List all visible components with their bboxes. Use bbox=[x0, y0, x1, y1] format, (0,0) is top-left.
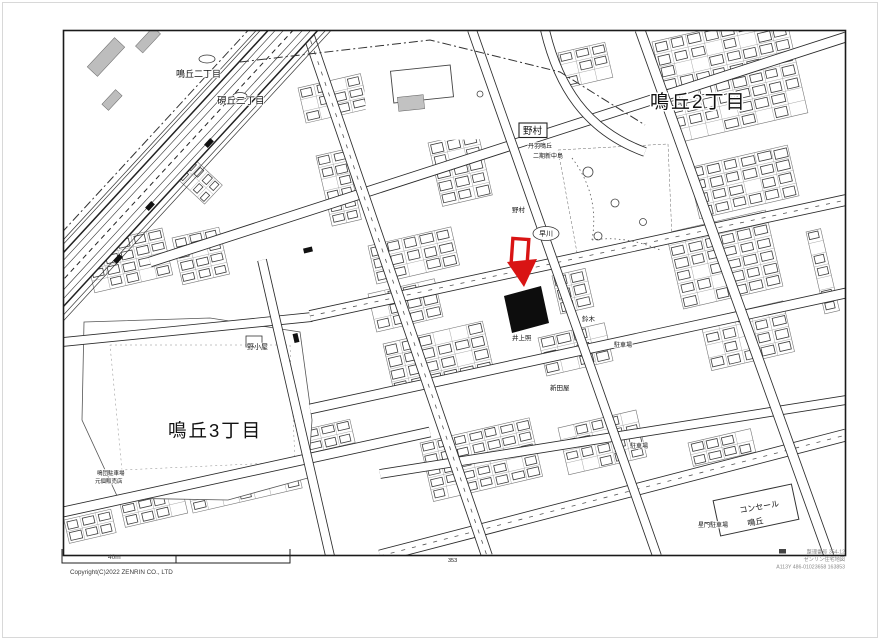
building bbox=[322, 167, 333, 177]
building bbox=[557, 333, 571, 344]
building bbox=[441, 356, 455, 367]
building bbox=[385, 344, 398, 355]
map-label: 二期新中島 bbox=[533, 152, 563, 160]
building bbox=[468, 323, 482, 334]
building bbox=[677, 270, 690, 280]
building bbox=[694, 454, 706, 464]
building bbox=[674, 257, 688, 268]
bus-stop-symbol bbox=[303, 247, 313, 254]
building bbox=[496, 475, 509, 485]
building bbox=[727, 51, 740, 61]
building bbox=[318, 155, 330, 165]
building bbox=[765, 189, 779, 200]
building bbox=[194, 167, 204, 177]
building bbox=[577, 297, 591, 307]
building bbox=[655, 41, 668, 52]
building bbox=[742, 114, 756, 125]
building bbox=[774, 148, 789, 159]
building bbox=[546, 362, 559, 372]
building bbox=[455, 340, 469, 350]
building bbox=[779, 173, 793, 184]
building bbox=[706, 438, 719, 448]
building bbox=[681, 282, 694, 292]
building bbox=[716, 202, 729, 212]
building bbox=[783, 186, 796, 197]
building bbox=[86, 527, 98, 536]
building bbox=[439, 180, 453, 191]
copyright-text: Copyright(C)2022 ZENRIN CO., LTD bbox=[70, 569, 173, 576]
building bbox=[214, 265, 226, 274]
building bbox=[472, 173, 485, 183]
building bbox=[471, 336, 485, 347]
building bbox=[307, 111, 320, 121]
building bbox=[426, 307, 440, 318]
building bbox=[149, 230, 162, 240]
building bbox=[576, 48, 589, 57]
building bbox=[527, 467, 540, 477]
building bbox=[136, 245, 149, 255]
building bbox=[726, 172, 739, 182]
building bbox=[740, 444, 752, 454]
building bbox=[473, 443, 485, 453]
building bbox=[600, 455, 612, 465]
map-margin-footer: 40m 353 Copyright(C)2022 ZENRIN CO., LTD… bbox=[62, 548, 845, 577]
map-label: 鳴団駐車場 bbox=[97, 469, 125, 477]
building bbox=[760, 164, 774, 174]
map-label: 星門駐車場 bbox=[698, 521, 728, 529]
building bbox=[525, 456, 537, 466]
building bbox=[419, 335, 432, 346]
building bbox=[309, 441, 322, 450]
building bbox=[431, 142, 444, 153]
building bbox=[757, 151, 771, 162]
building bbox=[454, 435, 466, 444]
map-label: 野村 bbox=[523, 125, 543, 137]
building bbox=[750, 73, 763, 83]
map-canvas: 野村丹羽鳴丘二期新中島野村早川鈴木井上照新田屋駐車場駐車場星門駐車場コンセール鳴… bbox=[0, 0, 880, 640]
building bbox=[743, 47, 757, 58]
facility-gray-building bbox=[397, 95, 424, 112]
target-parcel bbox=[504, 286, 549, 333]
map-label: 野村 bbox=[512, 205, 526, 214]
building bbox=[98, 512, 110, 521]
building bbox=[404, 237, 417, 248]
building bbox=[126, 514, 138, 524]
building bbox=[721, 435, 734, 445]
map-label: 新田屋 bbox=[550, 383, 570, 392]
building bbox=[782, 65, 796, 76]
building bbox=[725, 341, 738, 351]
building bbox=[766, 275, 780, 286]
building bbox=[517, 421, 530, 431]
building bbox=[560, 52, 572, 61]
building bbox=[761, 345, 775, 356]
building bbox=[387, 241, 400, 251]
building bbox=[478, 466, 490, 475]
building bbox=[211, 253, 223, 262]
building bbox=[353, 99, 366, 108]
building bbox=[773, 27, 787, 38]
map-label: 早川 bbox=[539, 230, 553, 238]
building bbox=[142, 511, 154, 521]
building bbox=[741, 242, 754, 252]
building bbox=[658, 54, 671, 65]
highway-layer bbox=[4, 0, 353, 337]
building bbox=[716, 288, 729, 299]
building bbox=[775, 328, 789, 339]
building bbox=[757, 238, 770, 248]
district-label-ne: 鳴丘2丁目 bbox=[650, 91, 747, 113]
map-artwork-layer bbox=[4, 0, 846, 556]
building bbox=[594, 56, 607, 65]
building bbox=[743, 168, 757, 179]
building bbox=[494, 463, 507, 473]
building bbox=[458, 189, 471, 199]
building bbox=[737, 229, 751, 241]
building bbox=[771, 93, 785, 104]
building bbox=[741, 156, 755, 167]
building bbox=[778, 341, 791, 351]
building bbox=[339, 175, 351, 185]
bus-stop-group bbox=[303, 247, 313, 254]
building bbox=[710, 176, 723, 187]
building bbox=[322, 425, 335, 434]
building bbox=[691, 46, 705, 57]
building bbox=[771, 13, 786, 24]
building bbox=[710, 54, 724, 65]
building bbox=[661, 65, 675, 77]
building bbox=[541, 336, 555, 347]
building bbox=[337, 421, 350, 430]
building bbox=[422, 442, 434, 451]
building bbox=[776, 160, 791, 171]
building bbox=[697, 278, 710, 289]
building bbox=[596, 351, 609, 362]
building bbox=[182, 272, 195, 281]
building bbox=[442, 192, 456, 203]
district-label-small-upper: 鳴丘二丁目 bbox=[176, 68, 221, 79]
building bbox=[675, 50, 688, 60]
building bbox=[122, 503, 135, 512]
building bbox=[470, 432, 483, 441]
building bbox=[480, 477, 492, 486]
building bbox=[749, 193, 762, 204]
building bbox=[728, 354, 741, 364]
building bbox=[485, 427, 497, 437]
building bbox=[754, 97, 768, 108]
building bbox=[724, 38, 737, 48]
building bbox=[671, 245, 684, 255]
building bbox=[333, 213, 345, 222]
building bbox=[196, 257, 209, 266]
building bbox=[760, 251, 773, 261]
building bbox=[814, 254, 825, 264]
building bbox=[455, 176, 469, 187]
building bbox=[377, 318, 390, 328]
sheet-number: 353 bbox=[448, 558, 457, 564]
building bbox=[724, 159, 737, 169]
building bbox=[157, 265, 170, 275]
building bbox=[388, 356, 402, 367]
footer-right-line1: 整理番号 354-12 bbox=[807, 548, 845, 556]
footer-right-line3: A113Y 486-01023658 163853 bbox=[776, 565, 845, 571]
building bbox=[754, 19, 768, 30]
district-label-sw: 鳴丘3丁目 bbox=[168, 420, 262, 441]
building bbox=[420, 233, 434, 244]
building bbox=[439, 243, 453, 254]
gray-building bbox=[87, 38, 125, 77]
building bbox=[181, 260, 194, 270]
map-label: 駐車場 bbox=[630, 442, 648, 450]
gray-building bbox=[102, 90, 122, 111]
building bbox=[689, 113, 702, 123]
building bbox=[692, 254, 705, 265]
building bbox=[457, 447, 469, 456]
map-symbol-ellipse bbox=[199, 55, 215, 63]
target-marker-layer bbox=[504, 238, 549, 333]
building bbox=[434, 489, 445, 498]
building bbox=[671, 37, 684, 48]
building bbox=[407, 250, 420, 261]
building bbox=[347, 210, 358, 219]
building bbox=[724, 118, 738, 129]
building bbox=[82, 516, 95, 526]
building bbox=[752, 85, 766, 96]
building bbox=[769, 82, 782, 93]
map-label: 丹羽鳴丘 bbox=[528, 142, 552, 150]
building bbox=[443, 255, 457, 266]
building bbox=[786, 78, 799, 89]
map-label: 井上照 bbox=[512, 333, 532, 342]
building bbox=[733, 197, 746, 207]
building bbox=[749, 280, 763, 291]
building bbox=[335, 164, 347, 174]
building bbox=[566, 451, 578, 460]
building bbox=[193, 500, 206, 509]
building bbox=[724, 446, 737, 456]
building bbox=[747, 267, 760, 277]
building bbox=[689, 241, 703, 252]
building bbox=[571, 272, 584, 283]
building bbox=[476, 185, 490, 196]
lot-line bbox=[809, 240, 824, 243]
building bbox=[519, 432, 531, 441]
building bbox=[474, 349, 488, 360]
building bbox=[123, 262, 136, 272]
building bbox=[152, 242, 165, 251]
district-label-small-lower: 硯丘二丁目 bbox=[217, 96, 265, 107]
building bbox=[721, 233, 734, 244]
building bbox=[350, 88, 363, 97]
building bbox=[817, 266, 829, 275]
building bbox=[713, 188, 726, 198]
building bbox=[772, 316, 786, 327]
map-label: 野小屋 bbox=[247, 342, 268, 351]
building bbox=[110, 276, 122, 285]
building bbox=[126, 273, 139, 283]
building bbox=[776, 39, 790, 50]
building bbox=[426, 258, 440, 269]
map-label: 駐車場 bbox=[614, 341, 632, 349]
building bbox=[101, 524, 112, 534]
footer-right-line2: ゼンリン住宅地図 bbox=[803, 555, 845, 563]
building bbox=[691, 442, 704, 452]
building bbox=[503, 436, 516, 446]
building bbox=[762, 177, 775, 188]
building bbox=[707, 163, 720, 173]
building bbox=[391, 368, 405, 379]
building bbox=[501, 424, 514, 433]
building bbox=[512, 471, 525, 480]
building bbox=[437, 230, 450, 240]
building bbox=[729, 185, 743, 196]
building bbox=[157, 507, 170, 517]
building bbox=[592, 45, 605, 55]
zenrin-map-page: 野村丹羽鳴丘二期新中島野村早川鈴木井上照新田屋駐車場駐車場星門駐車場コンセール鳴… bbox=[0, 0, 880, 640]
building bbox=[424, 247, 437, 258]
building bbox=[598, 443, 611, 453]
building bbox=[193, 184, 203, 194]
building bbox=[347, 77, 359, 87]
building bbox=[300, 87, 312, 97]
building bbox=[759, 43, 773, 54]
building bbox=[67, 520, 78, 530]
building bbox=[209, 181, 219, 191]
building bbox=[711, 356, 724, 366]
building bbox=[325, 437, 337, 447]
building bbox=[723, 328, 736, 339]
footer-right-chip bbox=[779, 549, 786, 554]
building bbox=[755, 320, 768, 330]
building bbox=[431, 477, 444, 487]
building bbox=[683, 296, 697, 307]
building bbox=[447, 139, 460, 150]
building bbox=[754, 225, 768, 236]
building bbox=[758, 333, 771, 343]
highway-line bbox=[46, 4, 350, 334]
building bbox=[757, 31, 771, 43]
building bbox=[438, 344, 452, 354]
building bbox=[765, 69, 778, 79]
building bbox=[764, 263, 778, 274]
building bbox=[709, 451, 722, 460]
building bbox=[69, 530, 82, 540]
map-label: 元個販売店 bbox=[95, 477, 123, 485]
building bbox=[743, 254, 757, 265]
building bbox=[582, 447, 594, 457]
location-arrow-icon bbox=[507, 238, 537, 287]
building bbox=[774, 106, 788, 117]
building bbox=[199, 268, 211, 277]
building bbox=[808, 231, 819, 240]
scale-bar-label: 40m bbox=[108, 554, 121, 561]
building bbox=[576, 424, 588, 434]
map-label: 鈴木 bbox=[582, 314, 596, 323]
building bbox=[687, 33, 701, 44]
building bbox=[574, 284, 587, 295]
building bbox=[339, 434, 351, 443]
building bbox=[592, 420, 604, 430]
building bbox=[706, 332, 719, 342]
building bbox=[488, 440, 501, 450]
building bbox=[580, 60, 593, 70]
